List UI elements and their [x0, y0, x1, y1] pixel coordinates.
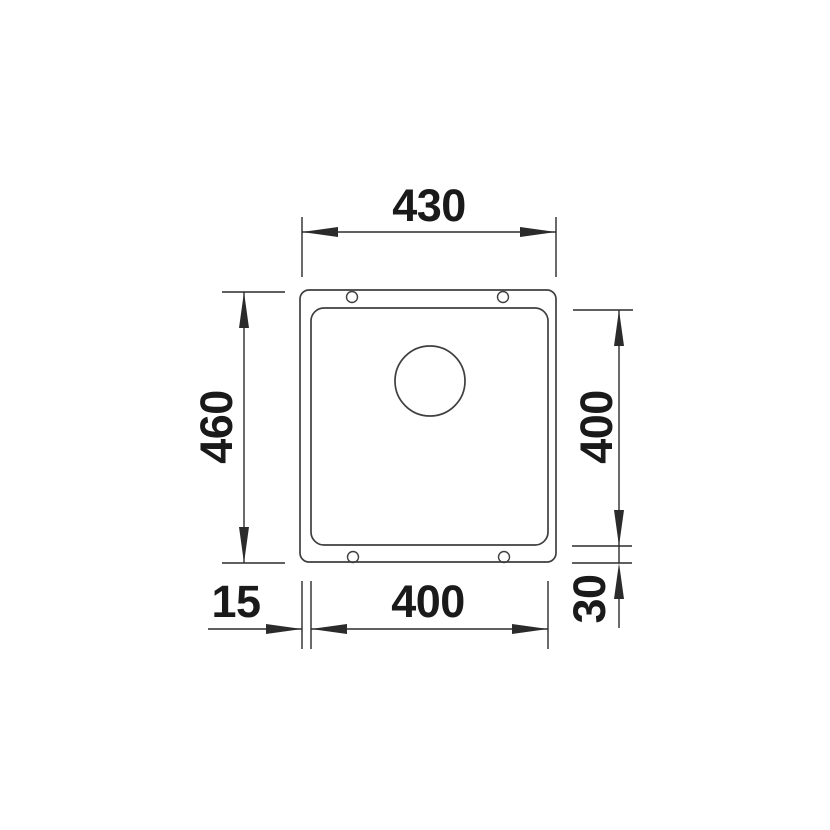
dimension-bowl-width: 400	[311, 576, 548, 649]
arrow-up-icon	[614, 310, 624, 346]
drain-hole-icon	[395, 346, 465, 416]
technical-drawing-canvas: 430 460 400 30	[0, 0, 830, 830]
arrow-right-icon	[520, 227, 556, 237]
dimension-bowl-height: 400	[571, 310, 633, 546]
dimension-outer-height: 460	[191, 292, 285, 563]
arrow-up-icon	[614, 563, 624, 599]
mounting-hole-top-right-icon	[498, 292, 509, 303]
mounting-hole-bottom-right-icon	[499, 552, 510, 563]
dimension-label-outer-height: 460	[191, 390, 242, 464]
sink-bowl-outline	[311, 308, 548, 545]
arrow-right-icon	[512, 624, 548, 634]
dimension-outer-width: 430	[302, 180, 556, 277]
mounting-hole-top-left-icon	[347, 292, 358, 303]
arrow-right-icon	[266, 624, 302, 634]
mounting-hole-bottom-left-icon	[348, 552, 359, 563]
dimension-label-bowl-height: 400	[571, 390, 622, 464]
arrow-down-icon	[239, 527, 249, 563]
arrow-left-icon	[311, 624, 347, 634]
dimension-label-bottom-rim: 30	[564, 574, 615, 623]
dimension-label-bowl-width: 400	[391, 576, 465, 627]
sink-outer-rim-outline	[300, 290, 556, 562]
arrow-down-icon	[614, 510, 624, 546]
dimension-label-outer-width: 430	[392, 180, 466, 231]
sink-technical-drawing: 430 460 400 30	[0, 0, 830, 830]
sink-plan-view	[300, 290, 556, 563]
dimension-label-left-rim: 15	[211, 576, 260, 627]
arrow-up-icon	[239, 292, 249, 328]
dimension-bottom-rim: 30	[564, 546, 632, 628]
dimension-left-rim: 15	[208, 576, 302, 649]
arrow-left-icon	[302, 227, 338, 237]
